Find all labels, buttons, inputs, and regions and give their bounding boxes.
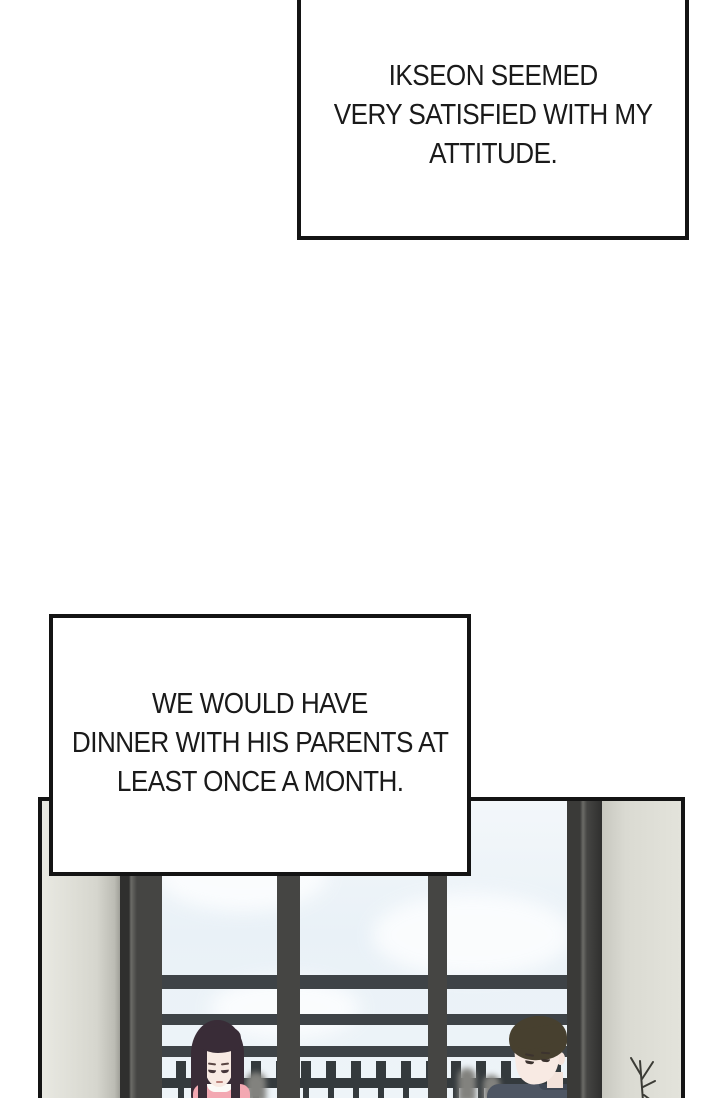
woman-character bbox=[191, 1020, 253, 1098]
window-frame-bar bbox=[567, 801, 602, 1098]
cloud bbox=[372, 893, 572, 977]
narration-line: ATTITUDE. bbox=[429, 135, 557, 174]
narration-line: WE WOULD HAVE bbox=[152, 685, 368, 724]
woman-mouth bbox=[216, 1081, 223, 1083]
woman-hair-strand bbox=[198, 1044, 207, 1098]
narration-line: IKSEON SEEMED bbox=[388, 57, 597, 96]
balcony-rail bbox=[118, 975, 604, 989]
bare-branch-icon bbox=[626, 1053, 662, 1098]
narration-line: DINNER WITH HIS PARENTS AT bbox=[72, 724, 449, 763]
narration-line: VERY SATISFIED WITH MY bbox=[334, 96, 653, 135]
webtoon-page: { "captions": { "top": { "lines": ["IKSE… bbox=[0, 0, 720, 1098]
narration-box-top: IKSEON SEEMED VERY SATISFIED WITH MY ATT… bbox=[297, 0, 689, 240]
woman-hair-strand bbox=[231, 1044, 240, 1098]
background-figure bbox=[458, 1068, 476, 1098]
narration-line: LEAST ONCE A MONTH. bbox=[117, 763, 404, 802]
narration-box-middle: WE WOULD HAVE DINNER WITH HIS PARENTS AT… bbox=[49, 614, 471, 876]
